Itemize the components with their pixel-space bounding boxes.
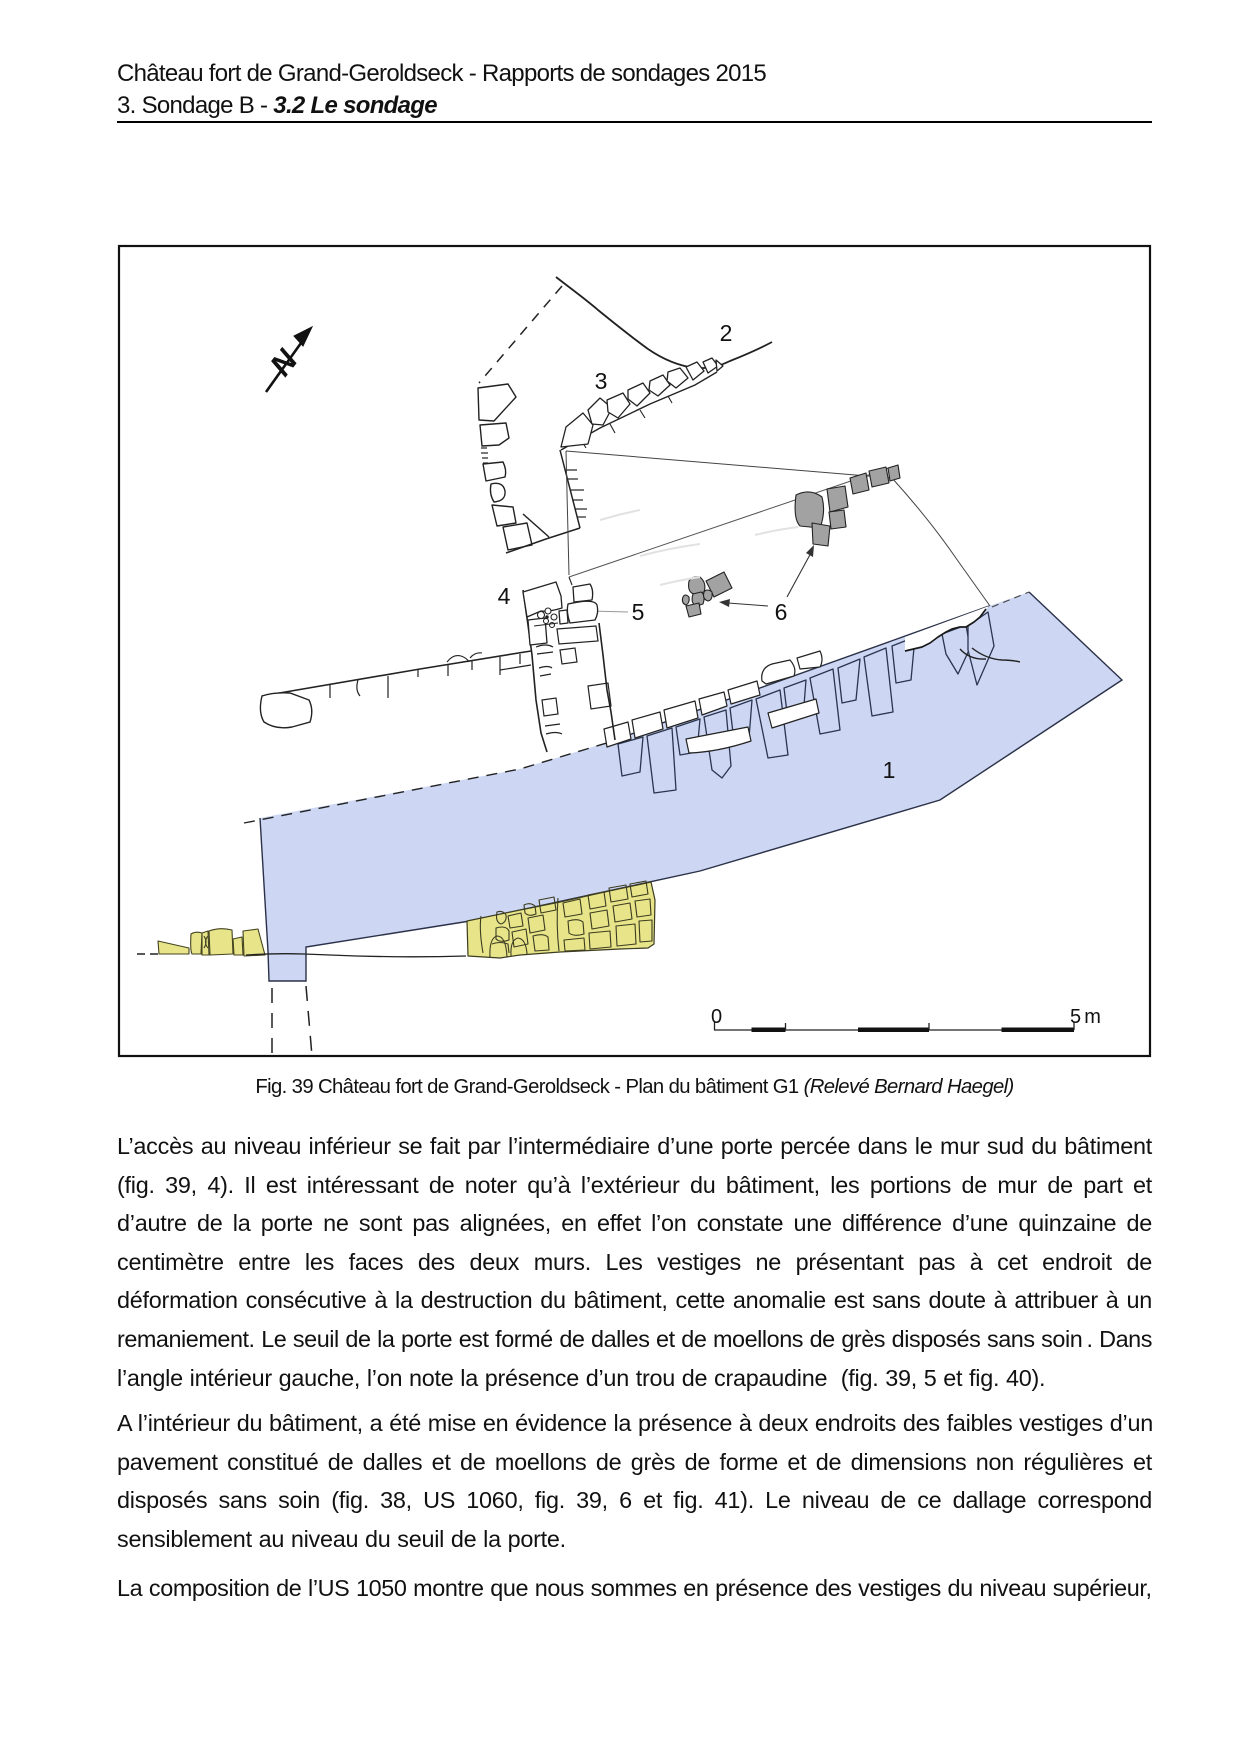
svg-text:1: 1 [883,757,896,783]
svg-text:2: 2 [720,320,733,346]
svg-text:0: 0 [711,1006,722,1028]
svg-text:6: 6 [775,599,788,625]
svg-text:3: 3 [595,368,608,394]
svg-text:5: 5 [632,599,645,625]
svg-text:5 m: 5 m [1070,1006,1100,1028]
svg-text:4: 4 [498,583,511,609]
